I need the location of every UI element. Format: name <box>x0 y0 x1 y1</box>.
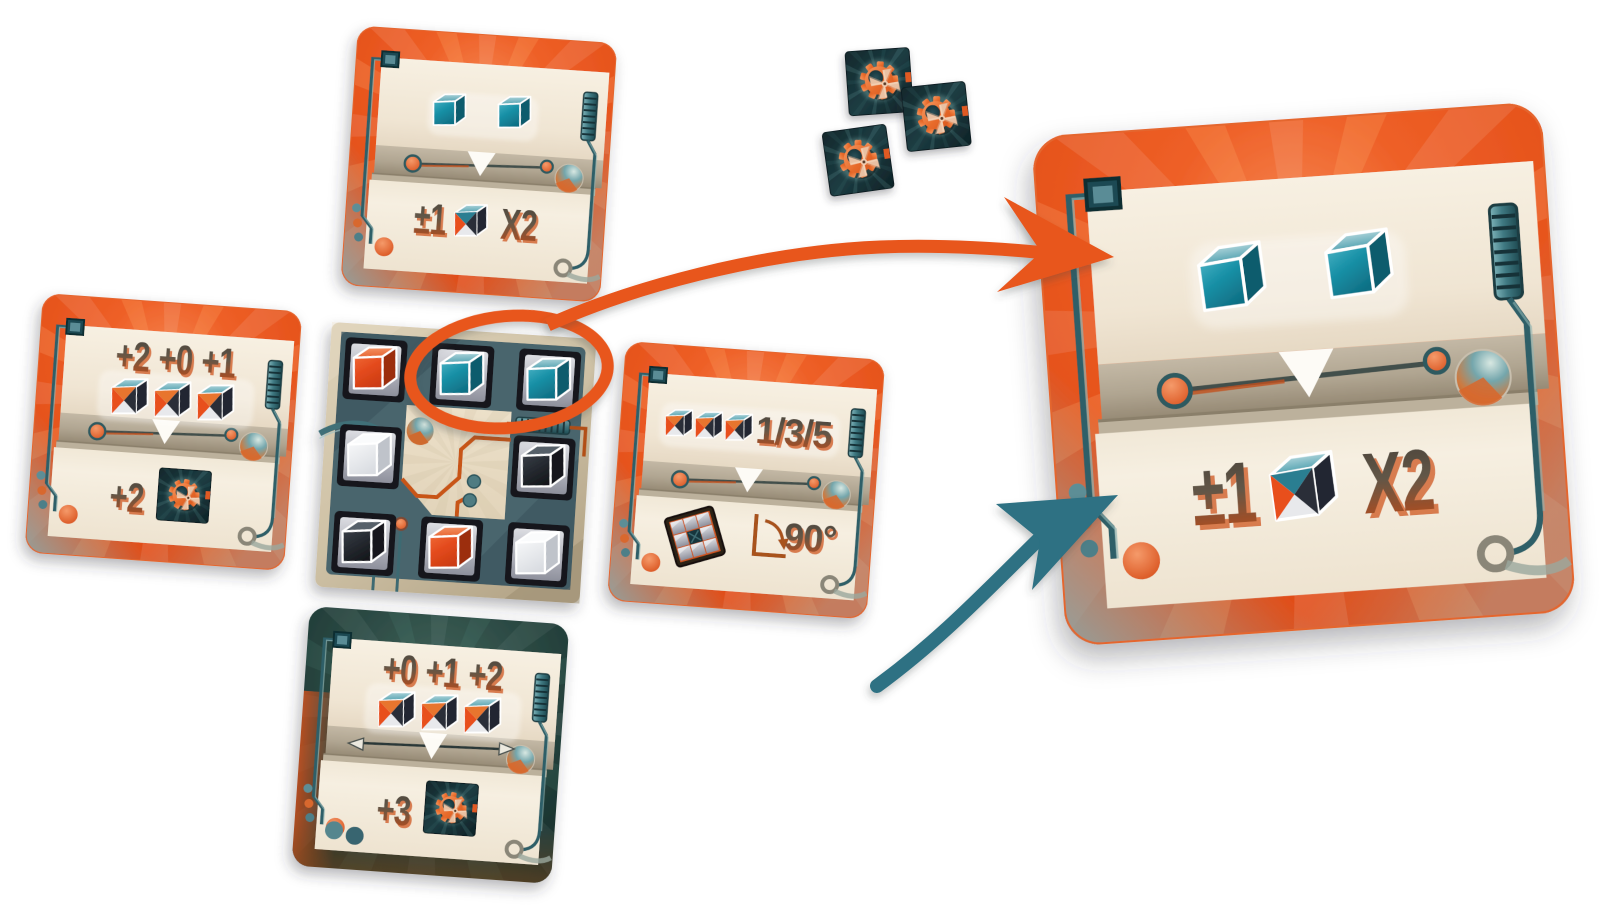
svg-text:1/3/5: 1/3/5 <box>754 410 834 458</box>
svg-text:+2: +2 <box>467 651 504 700</box>
svg-text:±1: ±1 <box>1189 444 1258 544</box>
svg-text:+1: +1 <box>424 647 462 696</box>
svg-text:+2: +2 <box>108 472 145 521</box>
svg-text:+1: +1 <box>200 338 238 387</box>
svg-text:X2: X2 <box>499 200 538 251</box>
svg-text:+2: +2 <box>114 331 151 380</box>
svg-text:+3: +3 <box>375 785 412 834</box>
svg-text:90°: 90° <box>783 516 838 562</box>
svg-text:+0: +0 <box>381 644 418 693</box>
svg-text:±1: ±1 <box>412 194 448 245</box>
svg-text:+0: +0 <box>157 334 194 383</box>
svg-text:X2: X2 <box>1359 432 1436 533</box>
